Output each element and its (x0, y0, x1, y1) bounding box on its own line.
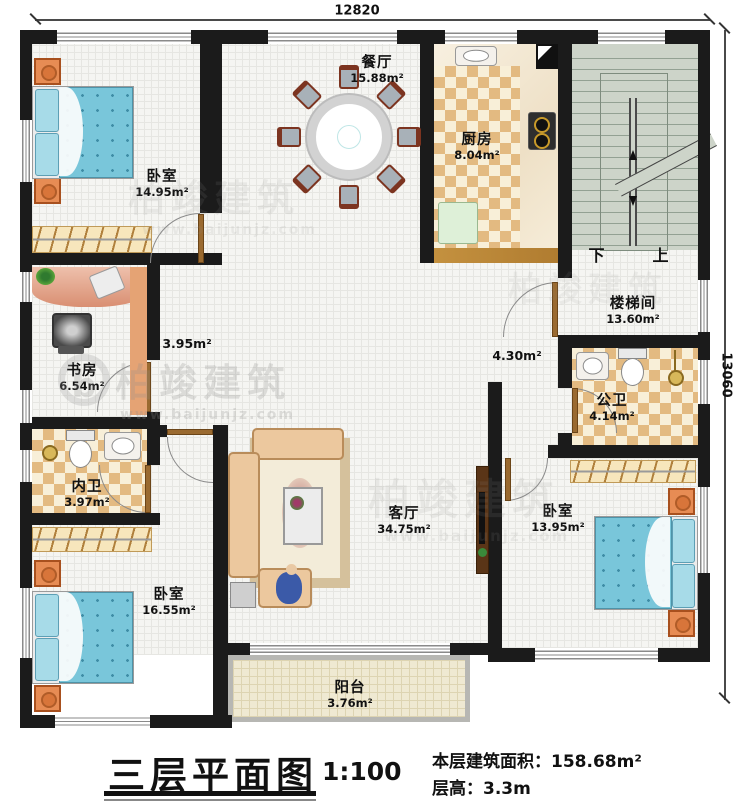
person-head (286, 564, 297, 575)
nightstand (34, 58, 61, 85)
dining-chair (339, 185, 359, 209)
plant-small (478, 548, 487, 557)
wall-bath-bedroom-divider (32, 513, 160, 525)
stove-burner (534, 133, 550, 149)
window (698, 280, 710, 332)
dimension-right-value: 13060 (719, 352, 734, 397)
window (55, 715, 150, 728)
window (268, 30, 397, 44)
floor-plan: 12820 13060 (0, 0, 750, 812)
wardrobe (570, 460, 696, 483)
room-label-balcony: 阳台3.76m² (327, 680, 372, 710)
sofa-bench (252, 428, 344, 460)
pillow (35, 89, 59, 132)
wall-kitchen-left (420, 44, 434, 263)
room-label-kitchen: 厨房8.04m² (454, 132, 499, 162)
drawing-scale: 1:100 (322, 757, 402, 786)
window (20, 272, 32, 302)
title-underline (104, 791, 316, 796)
pillow (672, 519, 695, 563)
nightstand (34, 685, 61, 712)
pillow (35, 594, 59, 637)
wardrobe (32, 527, 152, 552)
nightstand (34, 177, 61, 204)
room-label-dining: 餐厅15.88m² (350, 55, 403, 85)
kitchen-sink (455, 46, 497, 66)
window (698, 487, 710, 573)
dining-chair (397, 127, 421, 147)
toilet (621, 358, 644, 386)
floor-area-text: 本层建筑面积：158.68m² (432, 747, 642, 772)
dimension-line-top (35, 19, 710, 21)
table-flowers (290, 496, 304, 510)
door-leaf (572, 388, 578, 433)
wall-se-top (548, 445, 710, 458)
plant (36, 268, 55, 285)
watermark: b 柏竣建筑 www.baijunjz.com (58, 352, 295, 423)
title-underline-thin (104, 799, 316, 801)
hall-area-right: 4.30m² (492, 349, 541, 363)
dining-table (307, 95, 391, 179)
sofa-left (228, 452, 260, 578)
pillow (35, 638, 59, 681)
stove-burner (534, 117, 550, 133)
room-label-bath-public: 公卫4.14m² (589, 393, 634, 423)
window (57, 30, 191, 44)
window (20, 450, 32, 482)
pillow (672, 564, 695, 608)
shower-hose (674, 350, 676, 372)
wall-kitchen-stair (558, 30, 572, 263)
flue-vent (538, 46, 552, 60)
nightstand (34, 560, 61, 587)
stair-direction-arrow (629, 150, 637, 160)
dining-chair (277, 127, 301, 147)
wall-stair-left-c (558, 433, 572, 458)
room-label-bedroom-sw: 卧室16.55m² (142, 587, 195, 617)
door-leaf (167, 429, 213, 435)
floor-height-text: 层高：3.3m (432, 774, 531, 799)
coffee-table (283, 487, 323, 545)
door-leaf (145, 465, 151, 513)
computer-monitor (52, 313, 92, 348)
refrigerator (438, 202, 478, 244)
window (20, 588, 32, 658)
wall-living-bottom-left (213, 643, 250, 655)
window (535, 648, 658, 662)
window (20, 390, 32, 423)
wall-study-right-a (147, 265, 160, 360)
nightstand (668, 488, 695, 515)
balcony-sliding-door (250, 643, 450, 655)
toilet (69, 440, 92, 468)
window (598, 30, 665, 44)
watermark-logo-icon: b (58, 354, 110, 406)
window (445, 30, 517, 44)
window (698, 360, 710, 404)
wall-sw-entry-stub (160, 425, 167, 437)
hall-area-left: 3.95m² (162, 337, 211, 351)
dimension-top-value: 12820 (334, 4, 379, 19)
kitchen-threshold (434, 248, 558, 263)
watermark: 柏竣建筑 www.baijunjz.com (128, 168, 317, 238)
watermark: 柏竣建筑 (508, 262, 668, 311)
wall-stair-bath-divider (558, 335, 710, 348)
room-label-bath-inner: 内卫3.97m² (64, 479, 109, 509)
shower-head (42, 445, 58, 461)
person-figure (276, 572, 302, 604)
stair-direction-arrow (629, 196, 637, 206)
nightstand (668, 610, 695, 637)
shower-head (668, 370, 684, 386)
side-table (230, 582, 256, 608)
bathroom-sink (104, 432, 141, 460)
window (20, 120, 32, 182)
wall-bedroomsw-right (213, 425, 228, 723)
bedroom-se-threshold (505, 445, 548, 458)
pillow (35, 133, 59, 176)
watermark: 柏竣建筑 www.baijunjz.com (368, 466, 569, 545)
bathroom-sink (576, 352, 609, 380)
